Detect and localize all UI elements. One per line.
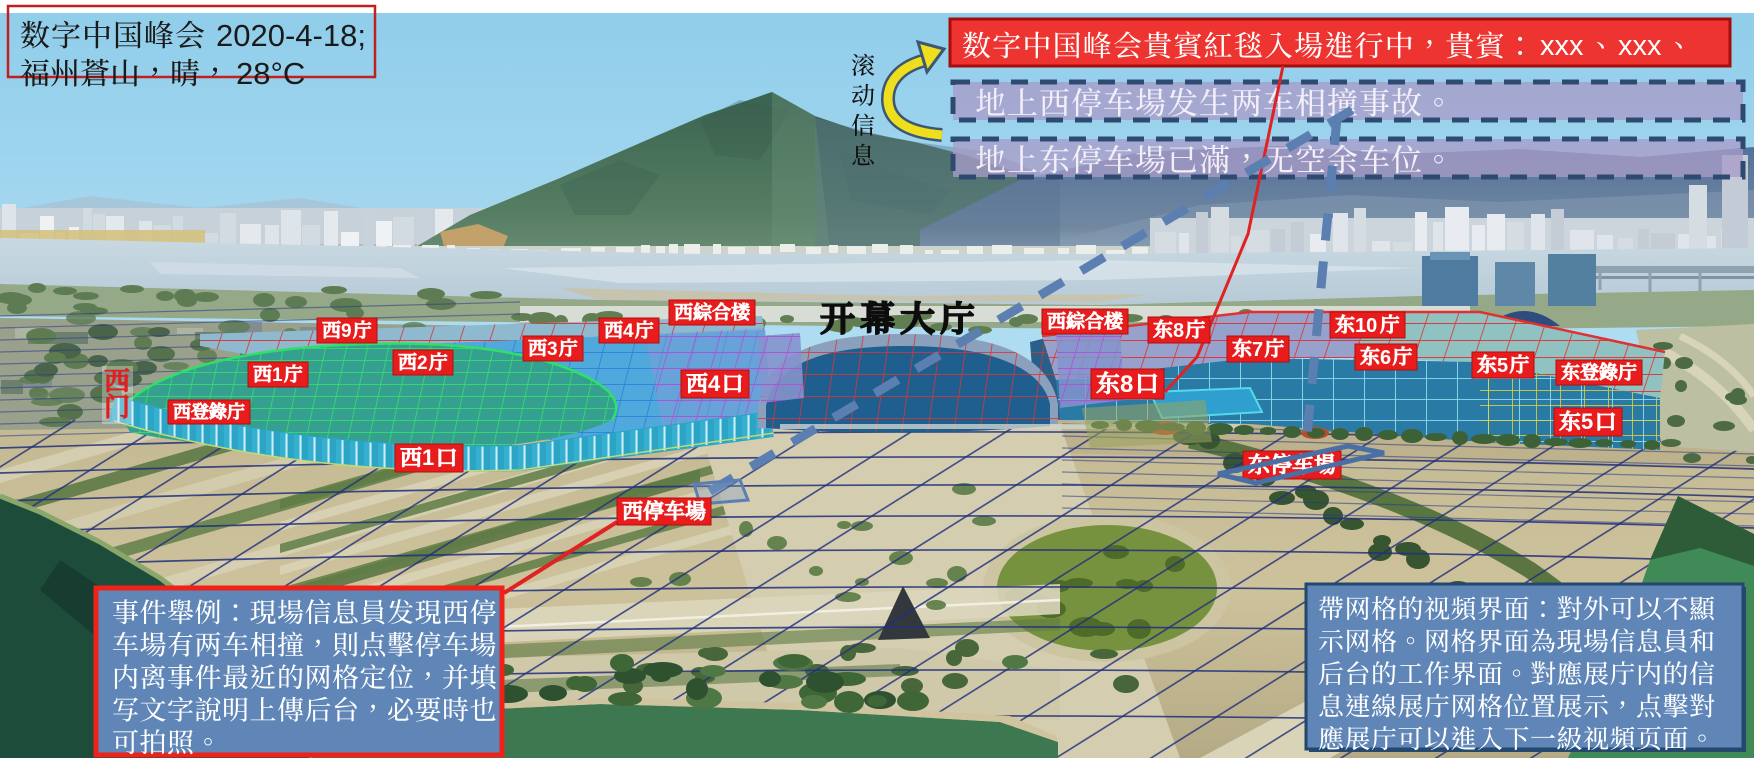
svg-text:1: 1 xyxy=(272,365,283,386)
svg-text:28°C: 28°C xyxy=(236,56,305,91)
svg-text:2020-4-18;: 2020-4-18; xyxy=(216,18,366,53)
svg-text:5: 5 xyxy=(1581,409,1593,434)
svg-text:7: 7 xyxy=(1252,339,1263,361)
svg-text:xxx: xxx xyxy=(1618,30,1662,62)
svg-text:8: 8 xyxy=(1120,371,1133,398)
svg-text:3: 3 xyxy=(547,339,558,360)
svg-text:8: 8 xyxy=(1173,320,1184,342)
svg-text:5: 5 xyxy=(1497,355,1508,377)
svg-text:4: 4 xyxy=(708,371,721,396)
svg-text:10: 10 xyxy=(1355,315,1377,337)
svg-text:6: 6 xyxy=(1380,347,1391,369)
svg-text:4: 4 xyxy=(623,321,634,342)
svg-text:2: 2 xyxy=(417,353,428,374)
svg-text:xxx: xxx xyxy=(1540,30,1584,62)
svg-text:1: 1 xyxy=(422,445,434,470)
svg-text:9: 9 xyxy=(341,321,352,342)
